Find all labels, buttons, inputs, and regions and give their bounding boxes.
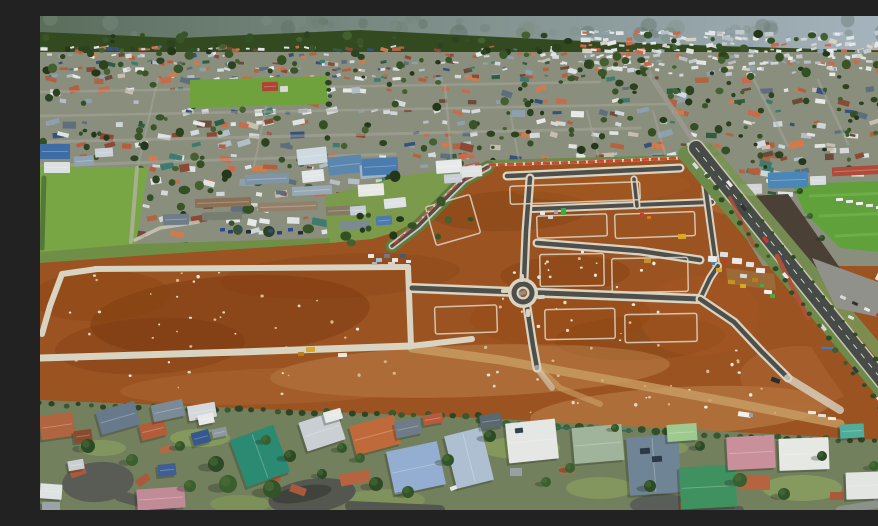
- house-roof: [280, 86, 288, 92]
- photo-canvas: [40, 16, 878, 510]
- house-roof: [42, 502, 60, 510]
- aerial-photo-housing-development: [40, 16, 878, 510]
- sports-field-top: [190, 76, 327, 108]
- house-roof: [202, 211, 242, 220]
